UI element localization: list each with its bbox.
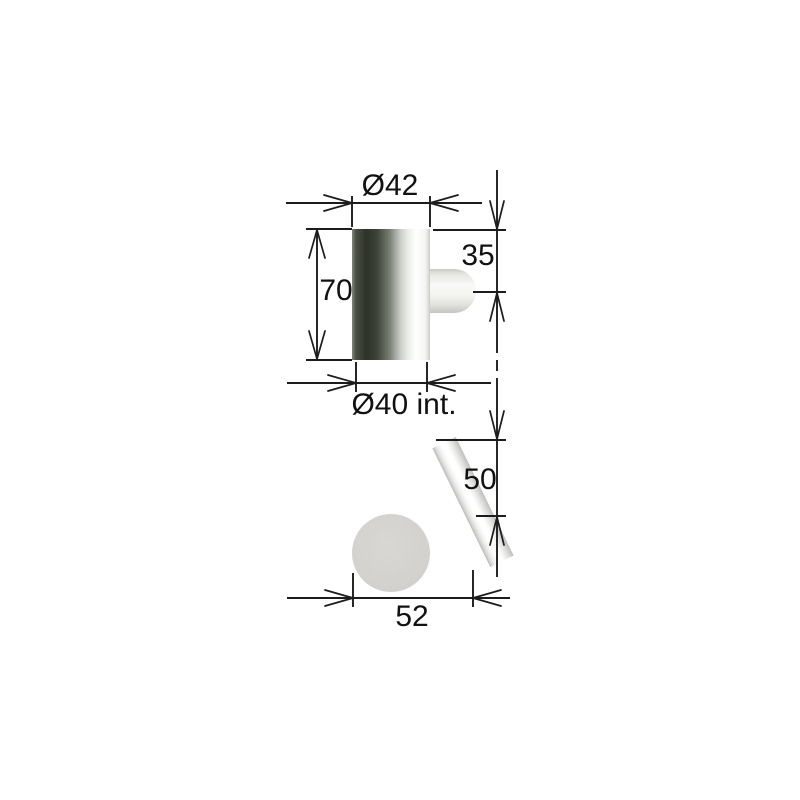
bottom-view [352, 437, 514, 592]
pin-stub [429, 269, 476, 313]
base-disc [352, 514, 430, 592]
label-base-width: 52 [395, 600, 428, 633]
label-inner-diameter: Ø40 int. [351, 388, 456, 421]
label-drop-height: 50 [463, 463, 496, 496]
dimension-inner-diameter: Ø40 int. [287, 362, 491, 421]
dimension-body-height: 70 [306, 229, 353, 360]
drawing-canvas: Ø42 70 35 Ø40 int. 50 [0, 0, 800, 800]
cylinder-body [352, 229, 430, 360]
dimension-outer-diameter: Ø42 [286, 169, 482, 227]
label-pin-offset: 35 [461, 239, 494, 272]
label-outer-diameter: Ø42 [362, 169, 419, 202]
label-body-height: 70 [319, 274, 352, 307]
rod [432, 437, 513, 567]
technical-drawing: Ø42 70 35 Ø40 int. 50 [0, 0, 800, 800]
top-view [352, 229, 476, 360]
